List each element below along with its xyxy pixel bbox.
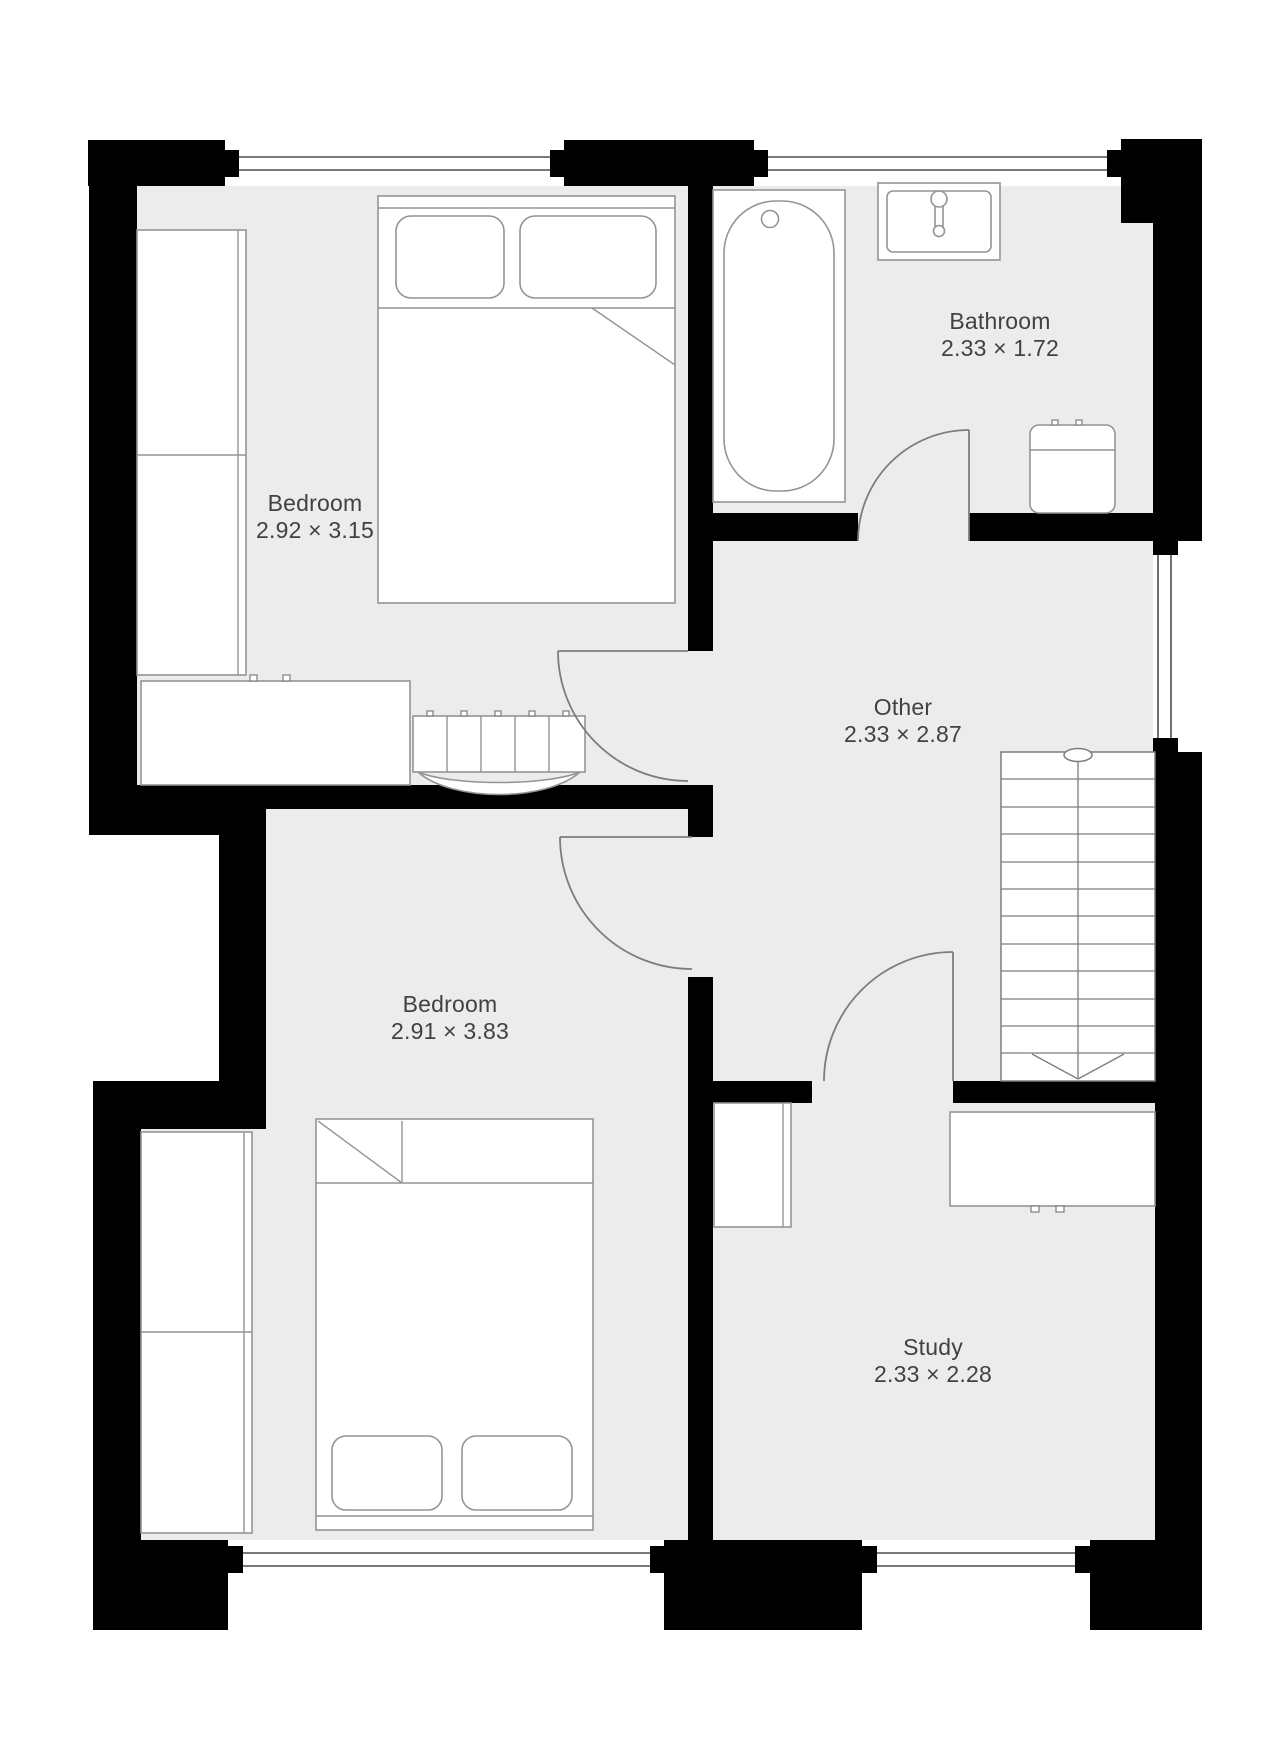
desk-body bbox=[950, 1112, 1155, 1206]
wall-segment bbox=[969, 513, 1202, 541]
dresser-body bbox=[141, 681, 410, 785]
window-opening bbox=[754, 140, 1121, 186]
room-label-bedroom-1: Bedroom 2.92 × 3.15 bbox=[256, 490, 374, 544]
wall-segment bbox=[93, 1540, 228, 1630]
toilet-hinge bbox=[1052, 420, 1058, 425]
double-bed-icon bbox=[316, 1119, 593, 1530]
dresser-knob bbox=[283, 675, 290, 681]
window-cap bbox=[1075, 1546, 1090, 1573]
wall-segment bbox=[1090, 1540, 1202, 1630]
sink-faucet-top bbox=[931, 191, 947, 207]
wall-segment bbox=[1153, 223, 1202, 513]
room-dims: 2.92 × 3.15 bbox=[256, 517, 374, 544]
desk-knob bbox=[1031, 1206, 1039, 1212]
wall-segment bbox=[688, 785, 713, 837]
bathtub-inner bbox=[724, 201, 834, 491]
window-cap bbox=[1107, 150, 1121, 177]
sink-icon bbox=[878, 183, 1000, 260]
cupboard-icon bbox=[714, 1103, 791, 1227]
floor-bathroom-doorway bbox=[858, 513, 969, 541]
dresser-icon bbox=[141, 675, 410, 785]
wall-segment bbox=[953, 1081, 1155, 1103]
knob bbox=[529, 711, 535, 716]
bed-pillow bbox=[396, 216, 504, 298]
bathtub-drain bbox=[762, 211, 779, 228]
room-name: Other bbox=[844, 694, 962, 721]
window-opening bbox=[225, 140, 564, 186]
window-opening bbox=[1153, 541, 1202, 752]
wall-segment bbox=[1121, 139, 1202, 223]
knob bbox=[495, 711, 501, 716]
bed-pillow bbox=[462, 1436, 572, 1510]
room-label-other: Other 2.33 × 2.87 bbox=[844, 694, 962, 748]
room-name: Bathroom bbox=[941, 308, 1059, 335]
floor-study-doorway bbox=[812, 1081, 953, 1103]
window-opening bbox=[862, 1540, 1090, 1596]
room-name: Bedroom bbox=[256, 490, 374, 517]
window-cap bbox=[228, 1546, 243, 1573]
knob bbox=[427, 711, 433, 716]
toilet-hinge bbox=[1076, 420, 1082, 425]
wardrobe-body bbox=[137, 230, 246, 675]
room-dims: 2.33 × 1.72 bbox=[941, 335, 1059, 362]
double-bed-icon bbox=[378, 196, 675, 603]
bed-pillow bbox=[332, 1436, 442, 1510]
room-label-study: Study 2.33 × 2.28 bbox=[874, 1334, 992, 1388]
dresser-knob bbox=[250, 675, 257, 681]
window-cap bbox=[1153, 738, 1178, 752]
room-dims: 2.33 × 2.87 bbox=[844, 721, 962, 748]
dressing-table-icon bbox=[413, 711, 585, 795]
room-dims: 2.33 × 2.28 bbox=[874, 1361, 992, 1388]
window-opening bbox=[228, 1540, 664, 1596]
wall-segment bbox=[713, 1081, 812, 1103]
wall-segment bbox=[713, 513, 858, 541]
knob bbox=[563, 711, 569, 716]
wall-segment bbox=[89, 140, 137, 835]
wall-segment bbox=[219, 835, 266, 1129]
wall-segment bbox=[564, 140, 754, 186]
room-name: Study bbox=[874, 1334, 992, 1361]
bathtub-icon bbox=[713, 190, 845, 502]
bedroom-2-window-bottom bbox=[228, 1540, 664, 1596]
wardrobe-icon bbox=[141, 1132, 252, 1533]
window-cap bbox=[862, 1546, 877, 1573]
sink-faucet-base bbox=[934, 226, 945, 237]
cupboard-body bbox=[714, 1103, 791, 1227]
room-dims: 2.91 × 3.83 bbox=[391, 1018, 509, 1045]
staircase-down-icon bbox=[1001, 749, 1155, 1082]
toilet-icon bbox=[1030, 420, 1115, 513]
window-cap bbox=[225, 150, 239, 177]
floor-plan-page: Bedroom 2.92 × 3.15 Bathroom 2.33 × 1.72… bbox=[0, 0, 1280, 1746]
dressing-table-body bbox=[413, 716, 585, 772]
wall-segment bbox=[664, 1540, 862, 1630]
wall-segment bbox=[688, 186, 713, 651]
desk-knob bbox=[1056, 1206, 1064, 1212]
wardrobe-icon bbox=[137, 230, 246, 675]
wall-segment bbox=[89, 785, 692, 809]
room-label-bedroom-2: Bedroom 2.91 × 3.83 bbox=[391, 991, 509, 1045]
landing-window-right bbox=[1153, 541, 1202, 752]
window-cap bbox=[1153, 541, 1178, 555]
desk-icon bbox=[950, 1112, 1155, 1212]
study-window-bottom bbox=[862, 1540, 1090, 1596]
window-cap bbox=[754, 150, 768, 177]
bedroom-1-window-top bbox=[225, 140, 564, 186]
wall-segment bbox=[1155, 752, 1202, 1596]
toilet-body bbox=[1030, 425, 1115, 513]
room-name: Bedroom bbox=[391, 991, 509, 1018]
knob bbox=[461, 711, 467, 716]
bed-pillow bbox=[520, 216, 656, 298]
floor-plan-drawing bbox=[0, 0, 1280, 1746]
floor-bedroom-1-doorway bbox=[688, 651, 713, 785]
window-cap bbox=[550, 150, 564, 177]
wall-segment bbox=[688, 977, 713, 1540]
stair-walkline-start bbox=[1064, 749, 1092, 762]
bathroom-window-top bbox=[754, 140, 1121, 186]
wall-segment bbox=[89, 809, 266, 835]
window-cap bbox=[650, 1546, 664, 1573]
room-label-bathroom: Bathroom 2.33 × 1.72 bbox=[941, 308, 1059, 362]
